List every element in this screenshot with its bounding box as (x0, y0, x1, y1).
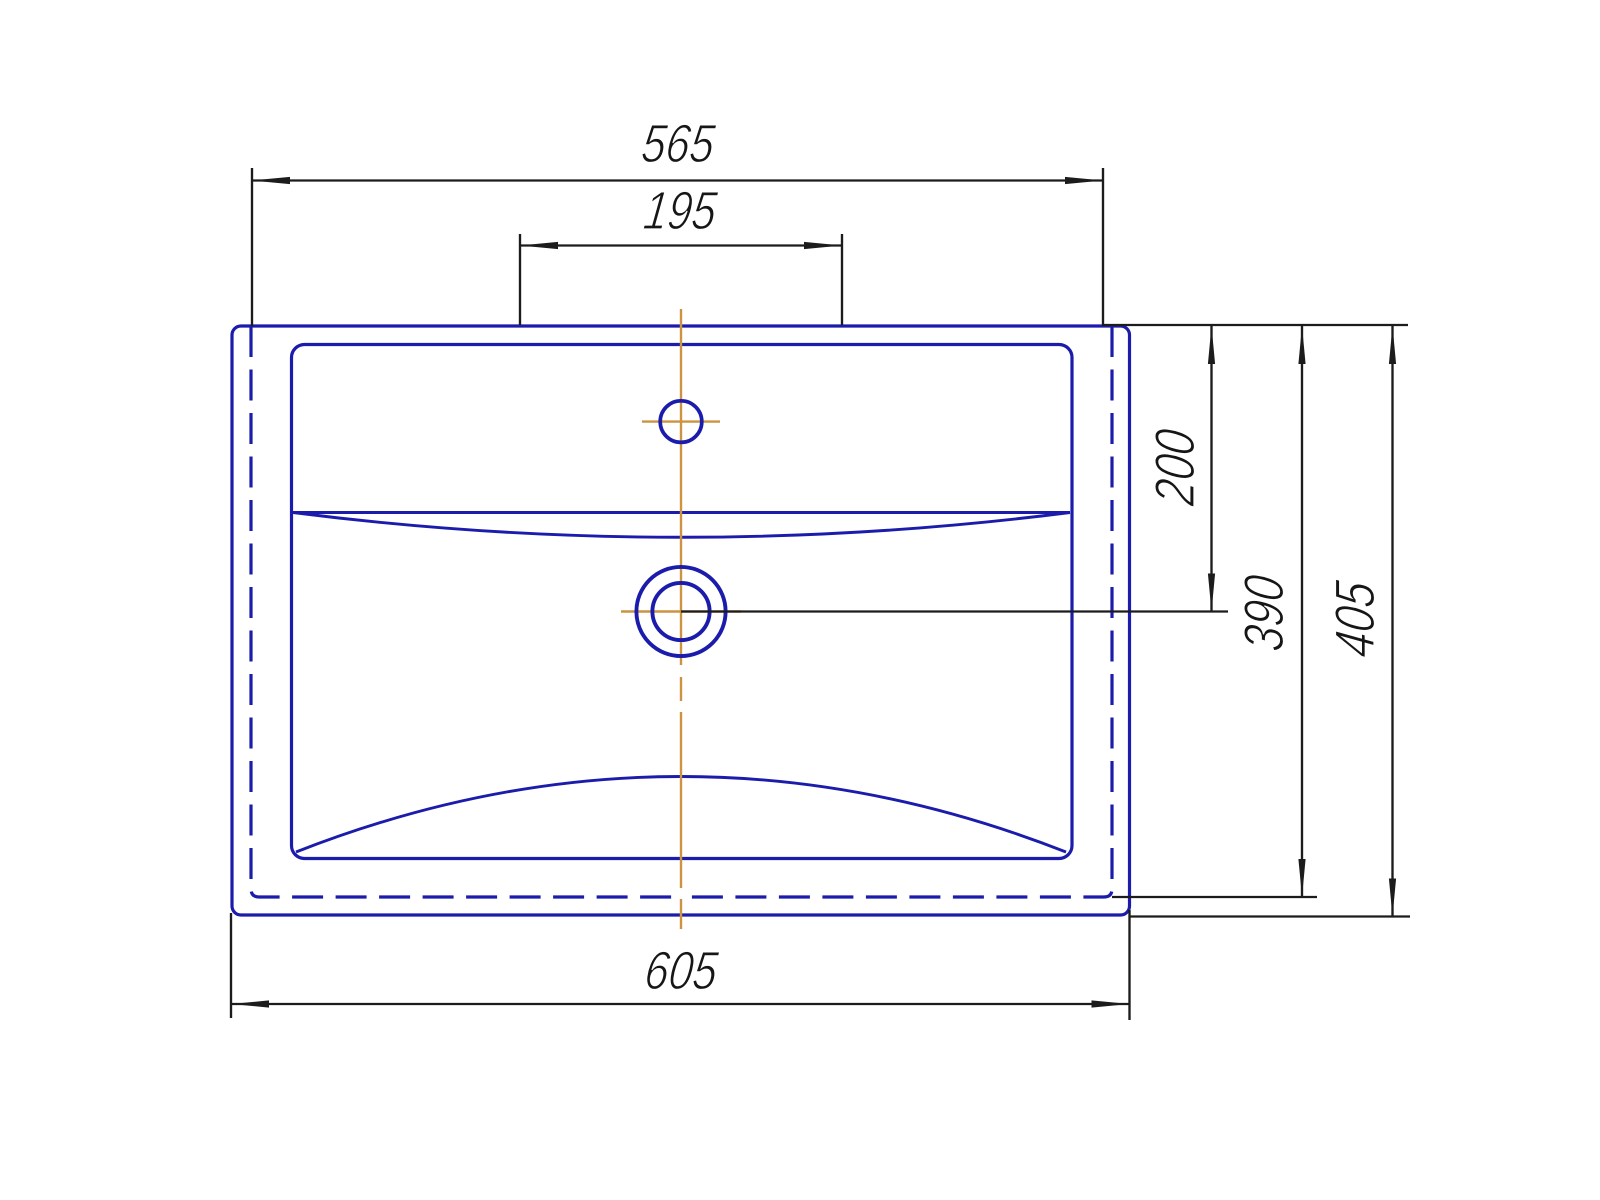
svg-text:405: 405 (1323, 577, 1386, 660)
svg-text:195: 195 (640, 182, 720, 241)
svg-text:200: 200 (1143, 426, 1206, 509)
svg-text:565: 565 (638, 115, 718, 174)
svg-text:390: 390 (1232, 572, 1295, 654)
svg-text:605: 605 (641, 942, 721, 1001)
